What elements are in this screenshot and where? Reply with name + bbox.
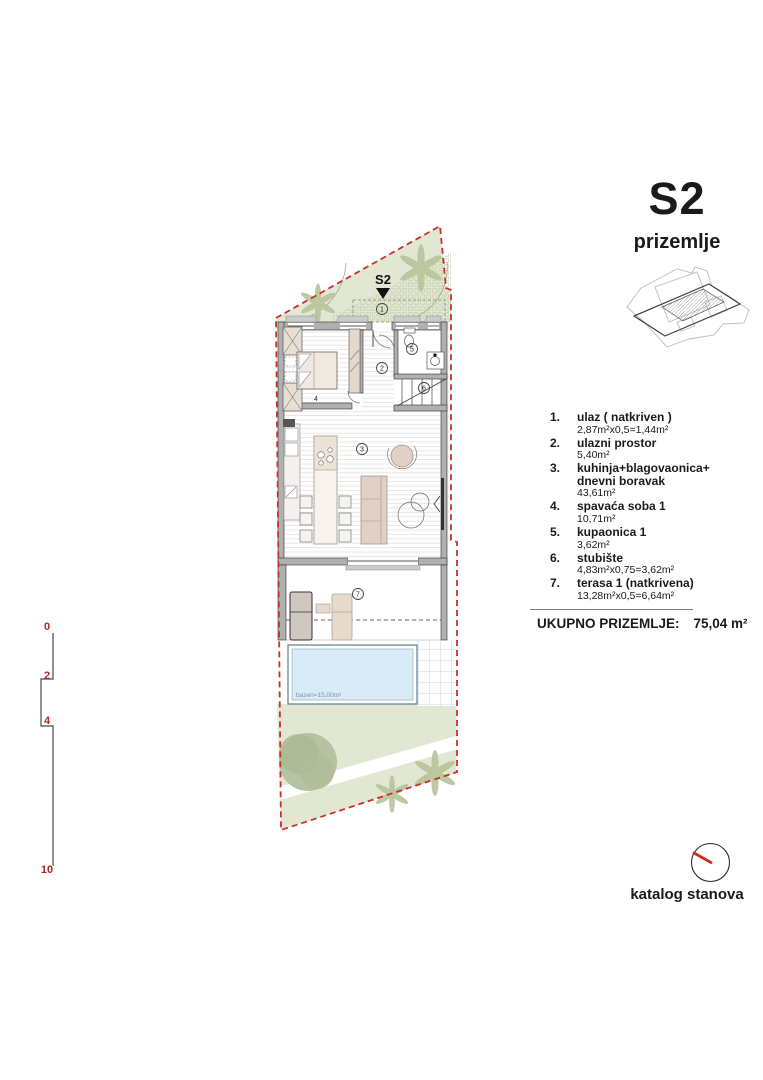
deck-tiles [417, 640, 456, 706]
catalog-title: katalog stanova [604, 886, 763, 903]
front-garden [276, 226, 451, 323]
armchair [391, 445, 413, 467]
legend-num: 2. [540, 437, 577, 462]
legend-num: 1. [540, 411, 577, 436]
legend-num: 4. [540, 500, 577, 525]
unit-marker-label: S2 [375, 272, 391, 287]
tree-icon [279, 733, 337, 791]
room-number-5: 5 [410, 347, 414, 354]
scale-bar-ticks: 0 2 4 10 [41, 621, 53, 876]
total-label: UKUPNO PRIZEMLJE: [537, 616, 680, 631]
legend-area: 4,83m²x0,75=3,62m² [577, 565, 745, 576]
legend-name: spavaća soba 1 [577, 500, 745, 513]
total-row: UKUPNO PRIZEMLJE: 75,04 m² [537, 616, 748, 631]
unit-highlight [662, 289, 724, 321]
scale-tick-0: 0 [44, 621, 50, 633]
legend-area: 5,40m² [577, 450, 745, 461]
room-number-3: 3 [360, 447, 364, 454]
legend-item: 6. stubište 4,83m²x0,75=3,62m² [540, 552, 745, 577]
site-locator-map [617, 260, 759, 350]
north-compass-icon [688, 840, 733, 885]
pool-area: bazen=15,00m² [286, 640, 456, 706]
legend-area: 13,28m²x0,5=6,64m² [577, 591, 745, 602]
room-number-1: 1 [380, 307, 384, 314]
sun-lounger [290, 592, 312, 640]
legend-name: kupaonica 1 [577, 526, 745, 539]
unit-code: S2 [597, 176, 757, 221]
legend-item: 7. terasa 1 (natkrivena) 13,28m²x0,5=6,6… [540, 577, 745, 602]
floor-plan: S2 bazen=15,00m² [253, 216, 477, 848]
legend-item: 4. spavaća soba 1 10,71m² [540, 500, 745, 525]
tv [441, 478, 444, 530]
room-number-6: 6 [422, 386, 426, 393]
room-legend: 1. ulaz ( natkriven ) 2,87m²x0,5=1,44m² … [540, 411, 745, 603]
legend-area: 2,87m²x0,5=1,44m² [577, 425, 745, 436]
legend-name: stubište [577, 552, 745, 565]
legend-name: kuhinja+blagovaonica+ dnevni boravak [577, 462, 745, 487]
legend-num: 7. [540, 577, 577, 602]
total-value: 75,04 m² [694, 616, 748, 631]
legend-item: 2. ulazni prostor 5,40m² [540, 437, 745, 462]
legend-area: 43,61m² [577, 488, 745, 499]
terrace-furniture [286, 592, 441, 640]
room-number-7: 7 [356, 592, 360, 599]
back-garden [270, 704, 462, 830]
floor-name: prizemlje [597, 231, 757, 254]
compass-needle [694, 853, 711, 863]
pool-label: bazen=15,00m² [296, 692, 342, 699]
wardrobe [349, 329, 360, 393]
legend-num: 5. [540, 526, 577, 551]
scale-tick-10: 10 [41, 864, 53, 876]
scale-tick-2: 2 [44, 670, 50, 682]
legend-num: 6. [540, 552, 577, 577]
legend-item: 5. kupaonica 1 3,62m² [540, 526, 745, 551]
legend-area: 3,62m² [577, 540, 745, 551]
total-separator [530, 609, 693, 610]
sofa [361, 476, 387, 544]
legend-name: ulaz ( natkriven ) [577, 411, 745, 424]
scale-bar: 0 2 4 10 [33, 616, 67, 880]
room-number-2: 2 [380, 366, 384, 373]
catalog-page: { "title": { "code": "S2", "floor": "pri… [0, 0, 763, 1080]
side-table [316, 604, 330, 613]
legend-num: 3. [540, 462, 577, 499]
scale-tick-4: 4 [44, 715, 51, 727]
legend-name: ulazni prostor [577, 437, 745, 450]
room-number-4: 4 [314, 396, 318, 403]
legend-name: terasa 1 (natkrivena) [577, 577, 745, 590]
legend-area: 10,71m² [577, 514, 745, 525]
legend-item: 3. kuhinja+blagovaonica+ dnevni boravak … [540, 462, 745, 499]
scale-bar-line [41, 633, 53, 866]
sun-lounger [332, 594, 352, 640]
title-block: S2 prizemlje [597, 176, 757, 254]
legend-item: 1. ulaz ( natkriven ) 2,87m²x0,5=1,44m² [540, 411, 745, 436]
